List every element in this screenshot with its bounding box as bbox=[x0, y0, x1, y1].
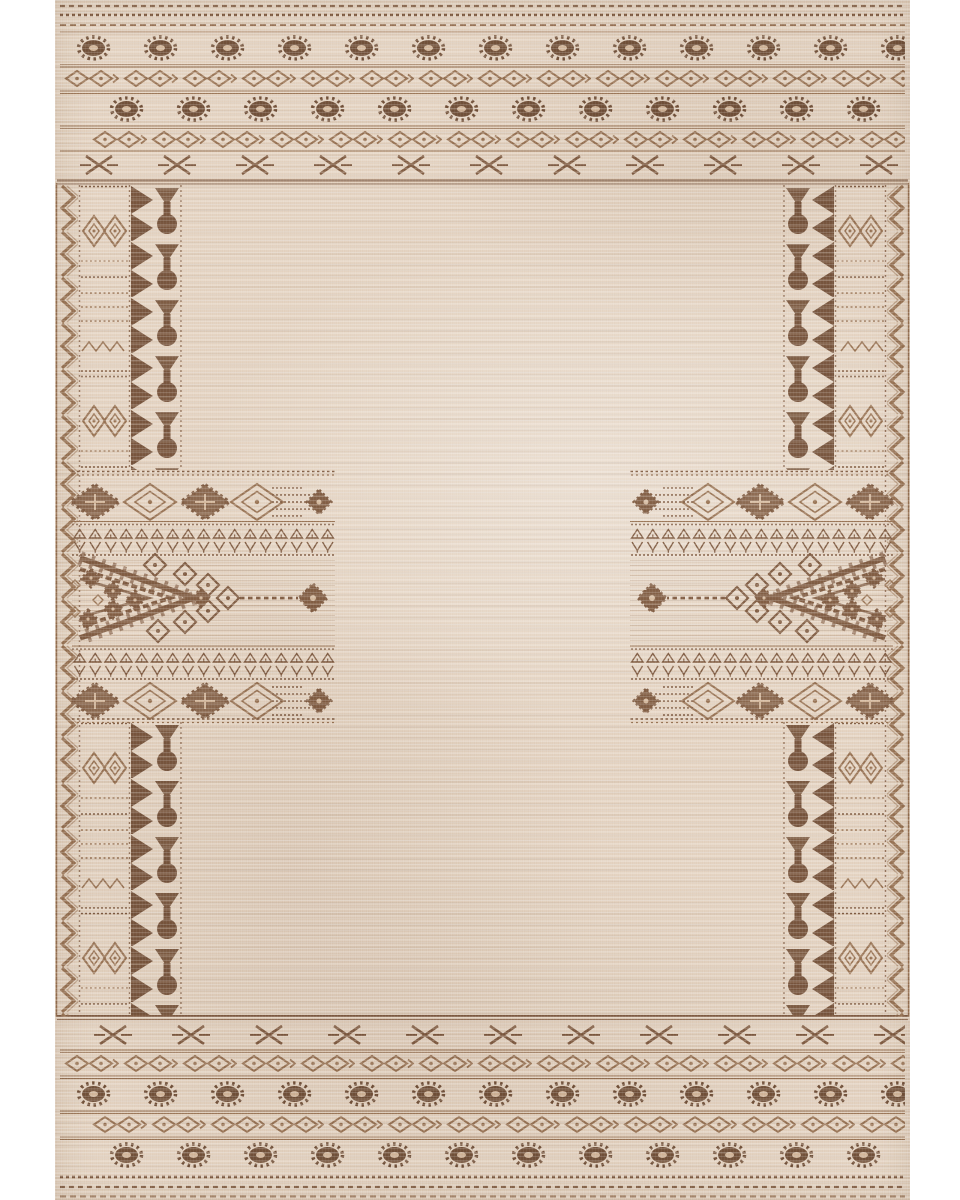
rug-right-medallion-band bbox=[630, 472, 895, 723]
rug-top-border bbox=[57, 6, 908, 184]
rug-bottom-border bbox=[57, 1016, 908, 1197]
rug-motif-overlay bbox=[0, 0, 960, 1200]
page: { "description": "Product photo of a rec… bbox=[0, 0, 960, 1200]
